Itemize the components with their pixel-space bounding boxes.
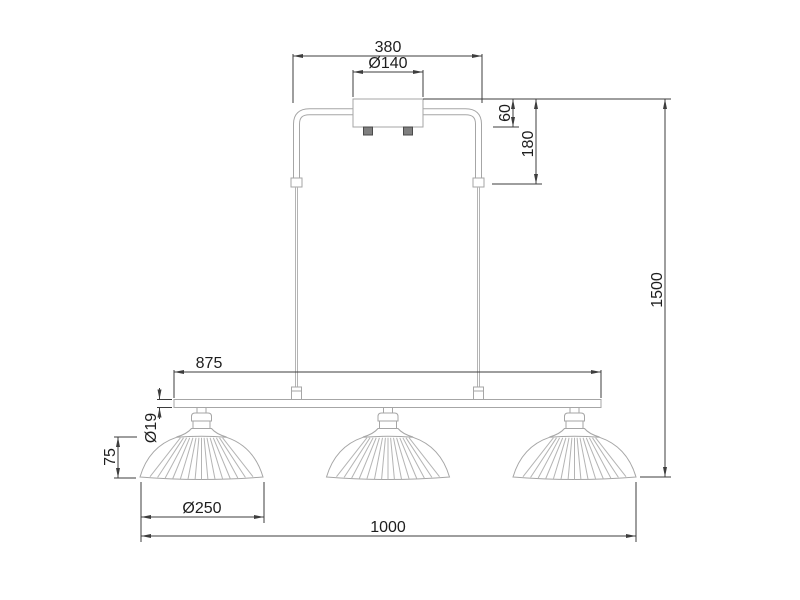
dim-total-height: 1500 [649, 272, 666, 308]
lamp-shade-right [513, 408, 636, 480]
dim-bar-length: 875 [196, 355, 223, 372]
dim-shade-diameter: Ø250 [182, 500, 221, 517]
canopy-screw-left [364, 127, 373, 135]
lamp-shade-middle [327, 408, 450, 480]
dim-total-width: 1000 [370, 519, 406, 536]
left-arm-connector [291, 178, 302, 187]
dim-canopy-diameter: Ø140 [368, 55, 407, 72]
pendant-lamp-dimension-drawing: 380 Ø140 60 180 1500 875 Ø19 75 Ø250 100… [0, 0, 800, 600]
lamp-bar [174, 400, 601, 408]
dim-suspension-drop: 180 [520, 131, 537, 158]
ceiling-canopy [353, 99, 423, 127]
dim-shade-height: 75 [102, 448, 119, 466]
dim-bar-diameter: Ø19 [143, 413, 160, 443]
right-arm-connector [473, 178, 484, 187]
wire-grippers [292, 387, 484, 400]
dim-top-width: 380 [375, 39, 402, 56]
canopy-screw-right [404, 127, 413, 135]
lamp-fixture [140, 99, 636, 480]
right-support-arm [423, 112, 479, 179]
suspension-wires [296, 187, 480, 387]
left-support-arm [297, 112, 354, 179]
technical-drawing-page: 380 Ø140 60 180 1500 875 Ø19 75 Ø250 100… [0, 0, 800, 600]
dim-canopy-height: 60 [497, 104, 514, 122]
